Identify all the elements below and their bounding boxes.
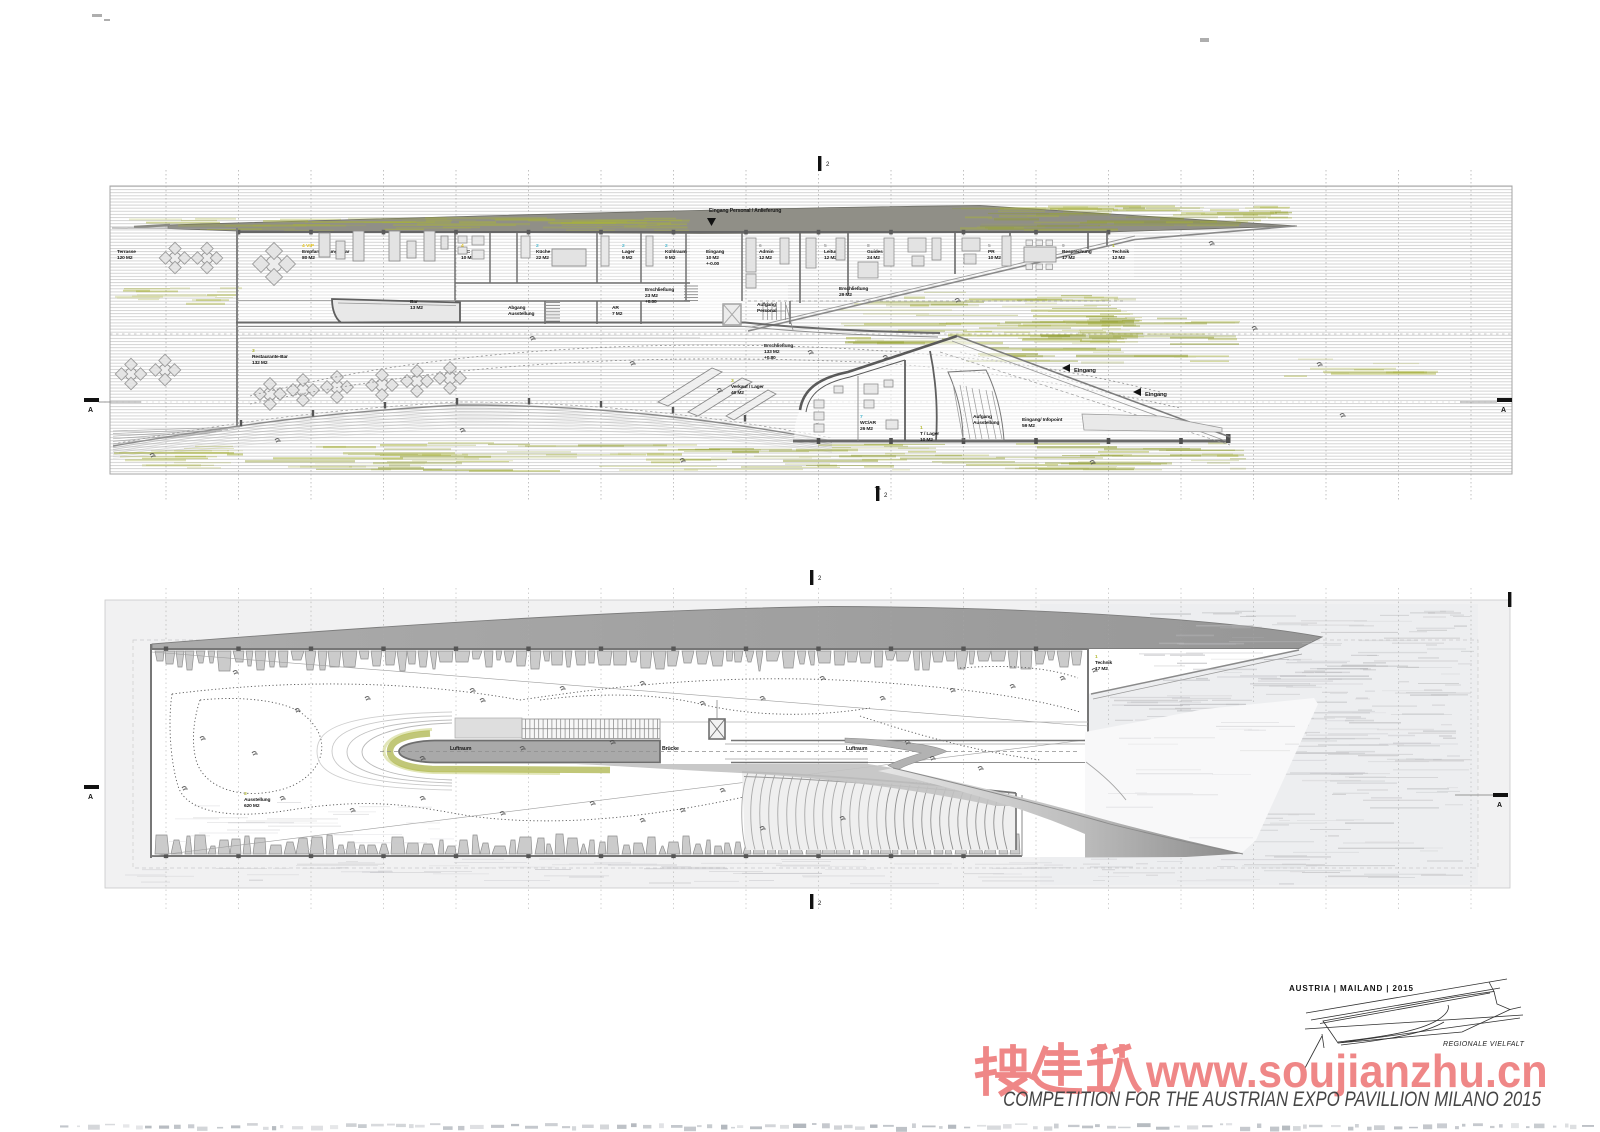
- svg-text:5: 5: [988, 243, 991, 249]
- svg-text:9: 9: [1062, 243, 1065, 249]
- svg-text:2: 2: [818, 901, 822, 907]
- svg-text:Kühlraum: Kühlraum: [665, 249, 687, 255]
- svg-text:9 M2: 9 M2: [665, 255, 676, 261]
- svg-text:8: 8: [867, 243, 870, 249]
- svg-text:COMPETITION FOR THE AUSTRIAN E: COMPETITION FOR THE AUSTRIAN EXPO PAVILL…: [1003, 1088, 1541, 1111]
- svg-text:7 M2: 7 M2: [612, 311, 623, 317]
- svg-text:2: 2: [622, 243, 625, 249]
- svg-text:6: 6: [759, 243, 762, 249]
- svg-text:+0.80: +0.80: [764, 355, 776, 361]
- svg-text:A: A: [1501, 407, 1506, 414]
- svg-text:22 M2: 22 M2: [536, 255, 549, 261]
- svg-text:17 M2: 17 M2: [1062, 255, 1075, 261]
- svg-text:29 M2: 29 M2: [839, 292, 852, 298]
- svg-text:Eingang: Eingang: [1074, 368, 1096, 374]
- svg-text:40 M2: 40 M2: [731, 390, 744, 396]
- svg-text:Bar: Bar: [410, 299, 418, 305]
- svg-text:PR: PR: [988, 249, 995, 255]
- svg-text:13 M2: 13 M2: [410, 305, 423, 311]
- svg-text:7: 7: [860, 414, 863, 420]
- svg-text:Erschließung: Erschließung: [839, 286, 868, 292]
- svg-text:Abgang: Abgang: [508, 305, 525, 311]
- svg-text:1: 1: [1112, 243, 1115, 249]
- svg-text:Aufgang: Aufgang: [973, 414, 992, 420]
- svg-text:Admin: Admin: [759, 249, 774, 255]
- svg-text:Eingang: Eingang: [706, 249, 724, 255]
- svg-text:Aufgang: Aufgang: [757, 302, 776, 308]
- svg-text:10 M2: 10 M2: [706, 255, 719, 261]
- svg-text:Erschließung: Erschließung: [645, 287, 674, 293]
- svg-text:Verkauf / Lager: Verkauf / Lager: [731, 384, 764, 390]
- svg-text:2: 2: [818, 576, 822, 582]
- svg-text:2: 2: [665, 243, 668, 249]
- svg-text:1: 1: [920, 425, 923, 431]
- svg-text:Ausstellung: Ausstellung: [244, 797, 271, 803]
- svg-text:A: A: [88, 407, 93, 414]
- svg-text:3: 3: [731, 378, 734, 384]
- svg-text:120 M2: 120 M2: [117, 255, 133, 261]
- svg-text:Küche: Küche: [536, 249, 551, 255]
- svg-text:2: 2: [536, 243, 539, 249]
- svg-text:23 M2: 23 M2: [645, 293, 658, 299]
- svg-text:10 M2: 10 M2: [988, 255, 1001, 261]
- svg-text:9 M2: 9 M2: [622, 255, 633, 261]
- svg-text:132 M2: 132 M2: [252, 360, 268, 366]
- svg-text:2: 2: [884, 493, 888, 499]
- svg-text:5: 5: [824, 243, 827, 249]
- svg-text:Ausstellung: Ausstellung: [508, 311, 535, 317]
- svg-text:12 M2: 12 M2: [824, 255, 837, 261]
- svg-text:59 M2: 59 M2: [1022, 423, 1035, 429]
- svg-text:2: 2: [826, 162, 830, 168]
- svg-text:12 M2: 12 M2: [759, 255, 772, 261]
- svg-text:Eingang/ Infopoint: Eingang/ Infopoint: [1022, 417, 1063, 423]
- svg-text:AUSTRIA | MAILAND | 2015: AUSTRIA | MAILAND | 2015: [1289, 984, 1414, 993]
- svg-text:Lager: Lager: [622, 249, 635, 255]
- svg-text:Brücke: Brücke: [662, 746, 679, 752]
- svg-text:AR: AR: [612, 305, 619, 311]
- svg-text:12 M2: 12 M2: [1112, 255, 1125, 261]
- svg-text:Personal: Personal: [757, 308, 777, 314]
- svg-text:A: A: [88, 794, 93, 801]
- svg-text:24 M2: 24 M2: [867, 255, 880, 261]
- svg-text:133 M2: 133 M2: [764, 349, 780, 355]
- svg-text:A: A: [1497, 802, 1502, 809]
- svg-text:T / Lager: T / Lager: [920, 431, 939, 437]
- svg-text:+0.00: +0.00: [645, 299, 657, 305]
- svg-text:WC/AR: WC/AR: [860, 420, 876, 426]
- svg-text:3: 3: [244, 791, 247, 797]
- svg-text:10 M2: 10 M2: [920, 437, 933, 443]
- svg-text:Eingang: Eingang: [1145, 392, 1167, 398]
- svg-text:80 M2: 80 M2: [302, 255, 315, 261]
- svg-text:3: 3: [252, 348, 255, 354]
- svg-text:26 M2: 26 M2: [860, 426, 873, 432]
- svg-text:Luftraum: Luftraum: [846, 746, 868, 752]
- svg-text:Terrasse: Terrasse: [117, 249, 136, 255]
- svg-text:Besprechung: Besprechung: [1062, 249, 1092, 255]
- svg-text:Technik: Technik: [1095, 660, 1112, 666]
- svg-text:Technik: Technik: [1112, 249, 1129, 255]
- svg-text:Luftraum: Luftraum: [450, 746, 472, 752]
- svg-text:Eingang Personal / Anlieferung: Eingang Personal / Anlieferung: [709, 208, 781, 214]
- svg-text:620 M2: 620 M2: [244, 803, 260, 809]
- svg-text:4 VIP: 4 VIP: [302, 243, 315, 249]
- svg-text:1: 1: [1095, 654, 1098, 660]
- svg-text:Restaurante-Bar: Restaurante-Bar: [252, 354, 288, 360]
- svg-text:+-0.00: +-0.00: [706, 261, 720, 267]
- svg-text:Ausstellung: Ausstellung: [973, 420, 1000, 426]
- svg-text:Guides: Guides: [867, 249, 883, 255]
